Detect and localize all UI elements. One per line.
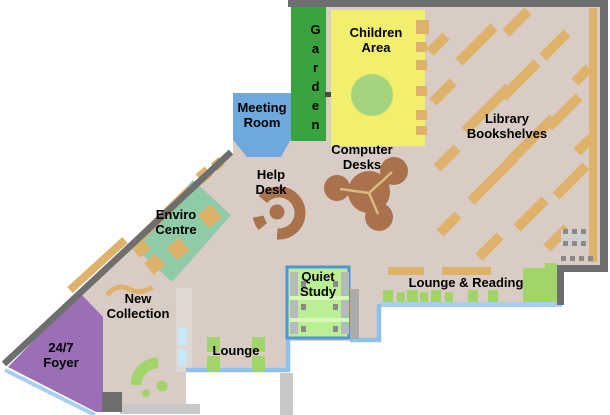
children-play-mat	[351, 74, 393, 116]
wall-shelf-right	[589, 8, 597, 262]
meeting-room	[233, 93, 291, 157]
quiet-study-room	[287, 267, 349, 338]
floor-plan-drawing	[0, 0, 610, 415]
foyer-entry-block	[102, 392, 122, 412]
sidewalk-bottom-left	[120, 404, 200, 414]
window-1	[178, 328, 187, 345]
pillar	[350, 289, 359, 339]
library-floor-plan: Garden Children Area Library Bookshelves…	[0, 0, 610, 415]
window-wall-bottom	[379, 302, 562, 307]
shelf-bottom-2	[442, 267, 491, 275]
window-2	[178, 349, 187, 366]
sidewalk-bottom-center	[280, 373, 293, 415]
shelf-bottom-1	[388, 267, 424, 275]
garden-room	[291, 7, 326, 141]
